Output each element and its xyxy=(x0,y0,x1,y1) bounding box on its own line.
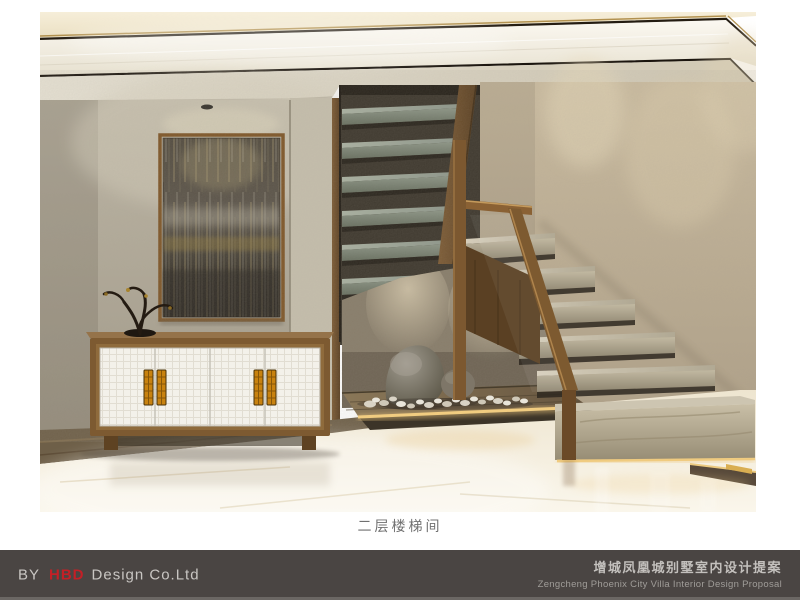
project-title-zh: 增城凤凰城别墅室内设计提案 xyxy=(538,557,782,576)
company-credit: BYHBDDesign Co.Ltd xyxy=(18,567,200,584)
sideboard-cabinet xyxy=(80,332,340,461)
brand-logo: HBD xyxy=(49,567,85,584)
footer-bar: BYHBDDesign Co.Ltd 增城凤凰城别墅室内设计提案 Zengche… xyxy=(0,550,800,600)
render-image xyxy=(40,12,756,512)
project-title-en: Zengcheng Phoenix City Villa Interior De… xyxy=(538,579,782,590)
bottom-post xyxy=(562,390,576,460)
stair-base-block xyxy=(555,396,755,460)
proposal-page: 二层楼梯间 BYHBDDesign Co.Ltd 增城凤凰城别墅室内设计提案 Z… xyxy=(0,0,800,600)
image-caption: 二层楼梯间 xyxy=(0,516,800,536)
project-title-block: 增城凤凰城别墅室内设计提案 Zengcheng Phoenix City Vil… xyxy=(538,557,782,590)
company-name: Design Co.Ltd xyxy=(92,567,200,584)
by-label: BY xyxy=(18,567,40,584)
newel-post xyxy=(453,140,466,400)
